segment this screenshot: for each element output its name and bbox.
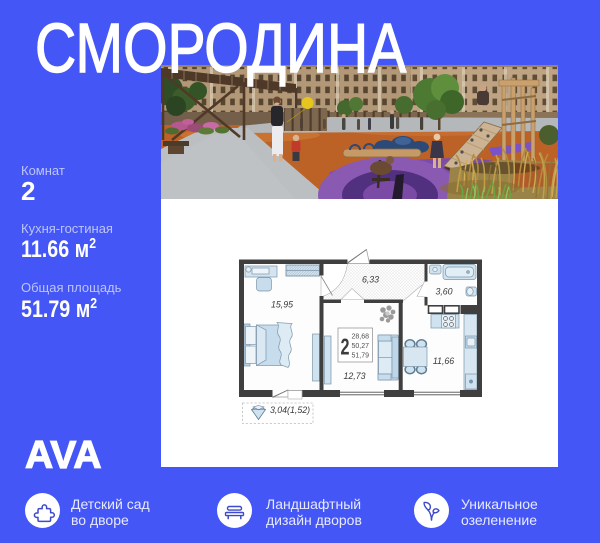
svg-text:2: 2 [341, 334, 350, 360]
svg-text:3,60: 3,60 [435, 287, 452, 297]
svg-text:11,66: 11,66 [433, 356, 454, 366]
svg-text:51,79: 51,79 [352, 353, 370, 360]
svg-text:28,68: 28,68 [352, 334, 370, 341]
svg-text:50,27: 50,27 [352, 343, 370, 350]
svg-text:6,33: 6,33 [362, 275, 379, 285]
svg-text:3,04(1,52): 3,04(1,52) [270, 405, 310, 415]
svg-text:12,73: 12,73 [343, 371, 365, 381]
svg-text:15,95: 15,95 [271, 300, 293, 310]
